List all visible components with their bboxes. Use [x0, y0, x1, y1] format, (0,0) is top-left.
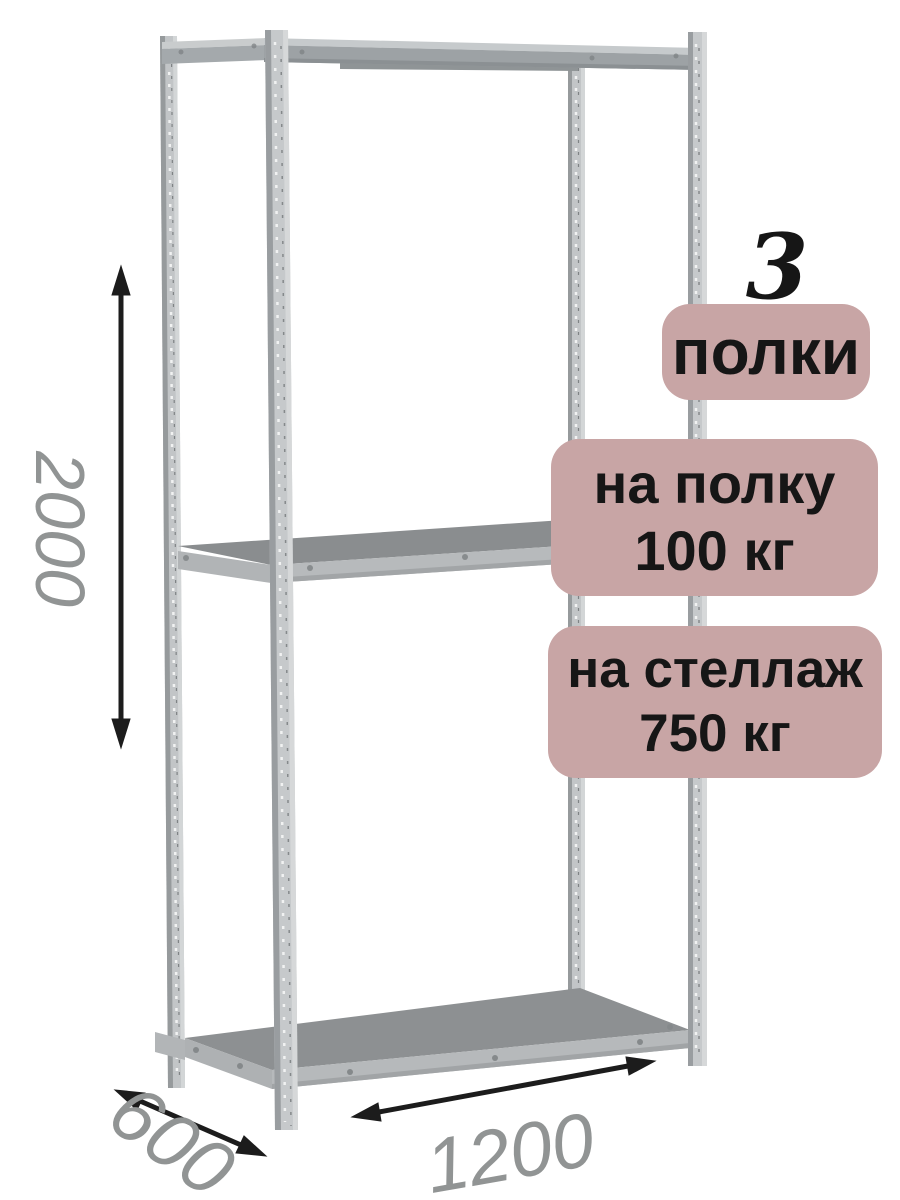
per-rack-load-badge: на стеллаж 750 кг [548, 626, 882, 778]
per-shelf-load-line1: на полку [594, 451, 836, 517]
height-dimension-label: 2000 [25, 419, 95, 639]
height-arrow-head-bottom [112, 719, 130, 748]
top-shelf [162, 38, 700, 71]
product-image: 2000 600 1200 3 полки на полку 100 кг на… [0, 0, 900, 1200]
shelf-count-number: 3 [720, 222, 834, 312]
per-shelf-load-line2: 100 кг [634, 518, 794, 584]
bottom-shelf [155, 988, 690, 1089]
per-rack-load-line1: на стеллаж [567, 638, 863, 702]
height-arrow-head-top [112, 266, 130, 295]
per-rack-load-line2: 750 кг [639, 702, 791, 766]
per-shelf-load-badge: на полку 100 кг [551, 439, 878, 596]
shelf-count-badge-label: полки [672, 315, 860, 389]
rack-illustration [0, 0, 900, 1200]
shelf-count-badge: полки [662, 304, 870, 400]
width-arrow-head-left [352, 1103, 381, 1121]
height-arrow [112, 266, 130, 748]
width-arrow-head-right [626, 1057, 655, 1075]
